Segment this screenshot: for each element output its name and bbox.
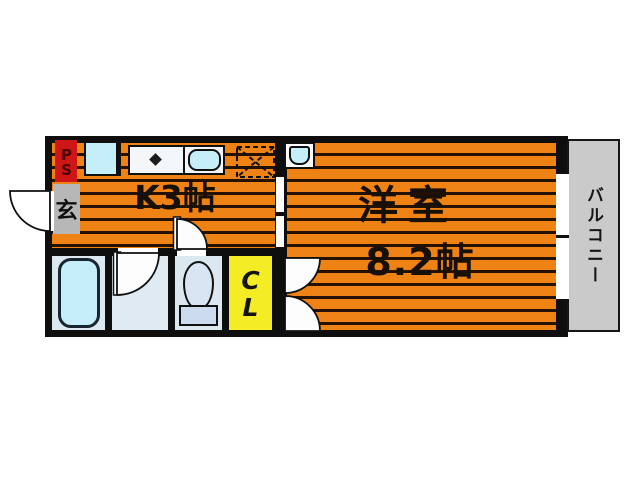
kitchen-sink — [188, 149, 221, 171]
toilet-tank — [179, 305, 218, 326]
entrance-door-opening — [44, 191, 54, 231]
kitchen-room-opening-upper — [276, 177, 284, 212]
counter-end-divider — [118, 141, 121, 176]
toilet-bowl — [183, 261, 214, 309]
entrance-genkan: 玄 — [53, 184, 80, 234]
bathtub — [58, 258, 100, 328]
entrance-label: 玄 — [55, 193, 77, 225]
balcony-area: バルコニー — [567, 139, 620, 332]
balcony-label: バルコニー — [581, 186, 606, 286]
toilet-door-opening — [177, 248, 206, 256]
window-frame-tick-middle — [556, 235, 569, 238]
closet: CL — [229, 256, 272, 330]
wash-basin-bowl — [289, 146, 310, 165]
kitchen-room-opening-lower — [276, 216, 284, 247]
window-frame-tick-bottom — [556, 299, 569, 302]
kitchen-counter-divider — [183, 145, 185, 175]
window-frame-tick-top — [556, 171, 569, 174]
western-room-size: 8.2帖 — [310, 243, 530, 281]
floorplan-canvas: バルコニー CL PS 玄 — [0, 0, 630, 480]
changing-room — [112, 256, 168, 330]
pipe-space: PS — [55, 140, 77, 182]
western-room-floor — [287, 143, 556, 330]
washing-machine-space — [84, 141, 118, 176]
western-room-name: 洋室 — [298, 186, 518, 226]
closet-label: CL — [238, 266, 263, 320]
changing-room-door-opening — [118, 248, 158, 256]
kitchen-label: K3帖 — [100, 181, 250, 214]
pipe-space-label: PS — [59, 146, 74, 176]
